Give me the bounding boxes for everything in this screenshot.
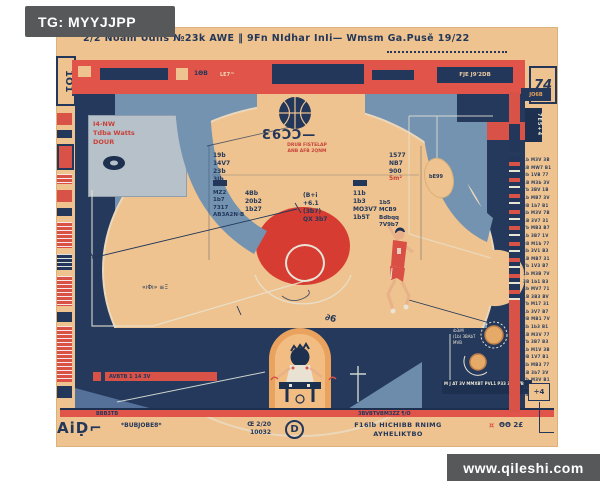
- left-strip-mark: [57, 326, 72, 382]
- stat-chip: [353, 180, 367, 186]
- center-badge-label: Ɛ6ϽϽ—: [262, 128, 316, 143]
- watermark-tag-text: TG: MYYJJPP: [38, 14, 136, 30]
- footer-small-text: *BUBJOBE8*: [121, 422, 161, 429]
- side-red-bar: [509, 300, 520, 412]
- stat-block: MZ2 1b7 7317 AB3A2N·B: [213, 190, 244, 220]
- panel-tag: bE99: [429, 174, 443, 180]
- left-strip-mark: [57, 386, 72, 398]
- footer-d-mark: D: [285, 420, 304, 439]
- stat-red: 5m²: [389, 175, 402, 182]
- footer-right-text: ΘΘ 2£: [499, 421, 523, 429]
- panel-text: I4·NW Tdba Watts DOUR: [93, 120, 135, 147]
- stat-block: 1b5 MCB9 Bdbqq 7V9b7: [379, 200, 399, 230]
- side-bar-navy: [509, 124, 520, 152]
- side-bar-red: [509, 92, 520, 122]
- side-plus-box: ÷4: [528, 383, 550, 401]
- red-rule-right-text: 3BVBTVBM3ZZ ¶/O: [358, 411, 411, 417]
- poster-image: 2/2 Noam Udils №23k AWE ‖ 9Fn NIdhar InI…: [57, 28, 557, 446]
- left-strip-mark: [57, 144, 74, 170]
- left-strip-mark: [57, 190, 72, 202]
- rule-shadow-line: [60, 408, 554, 410]
- bottom-band-shapes: [75, 334, 450, 414]
- watermark-tag-badge: TG: MYYJJPP: [25, 6, 175, 37]
- court-artwork-overlay: [57, 28, 557, 446]
- left-strip-mark: [57, 113, 72, 125]
- page: { "watermark": { "tag": "TG: MYYJJPP", "…: [0, 0, 600, 480]
- stat-block: 4Bb 20b2 1b27: [245, 190, 262, 214]
- footer-right-red-glyph: ¤: [489, 421, 494, 430]
- reader-figure: [271, 344, 336, 403]
- ball-markers-label: ıb3ıM (1b) ЗВАbТ MVB: [453, 328, 476, 346]
- left-strip-mark: [57, 130, 72, 138]
- left-strip-mark: [57, 222, 72, 248]
- side-tag-text: JO6B: [529, 92, 542, 98]
- red-rule: BBB3TB 3BVBTVBM3ZZ ¶/O: [60, 410, 554, 417]
- red-rule-left-text: BBB3TB: [96, 411, 118, 417]
- footer-code: Œ 2/20 10032: [219, 421, 271, 437]
- left-strip-mark: [57, 276, 72, 306]
- watermark-site-text: www.qileshi.com: [463, 460, 584, 476]
- side-tag-box: JO6B: [521, 88, 551, 101]
- panel-oval-marker: [103, 156, 125, 170]
- court-scribble: «ıΦı» ≡Ξ: [142, 284, 168, 291]
- side-list: 1b M3V 3B 4B MW7 B1 3b 1VB 77 1B M3b 3V …: [523, 156, 555, 414]
- watermark-site-badge: www.qileshi.com: [447, 454, 600, 481]
- side-tab: 7E5+4: [525, 108, 542, 142]
- center-badge-subtext: DRUB FISTELAP ANB AFB 2QNM: [252, 143, 362, 156]
- left-strip-mark: [57, 254, 72, 270]
- left-strip-mark: [57, 312, 72, 322]
- left-strip-mark: [57, 208, 72, 216]
- stat-block: (B+i +6.1 (3b7) QX 3b7: [303, 192, 327, 224]
- player-figure: [388, 225, 413, 314]
- basketball-icon: [279, 97, 311, 129]
- left-strip-mark: [57, 174, 72, 184]
- stat-chip: [213, 180, 227, 186]
- footer-big-text: AiḌ⌐: [57, 419, 103, 437]
- stat-block: 11b 1b3 MO3V7 1b5T: [353, 190, 377, 222]
- side-bracket: [539, 402, 554, 433]
- side-segment-bar: [509, 156, 520, 300]
- stat-block: 1577 NB7 900: [389, 152, 406, 176]
- footer-center-text: F16lb HICHIBB RNIMG AYHELIKTBO: [312, 421, 484, 439]
- annotation-lines: [90, 126, 525, 333]
